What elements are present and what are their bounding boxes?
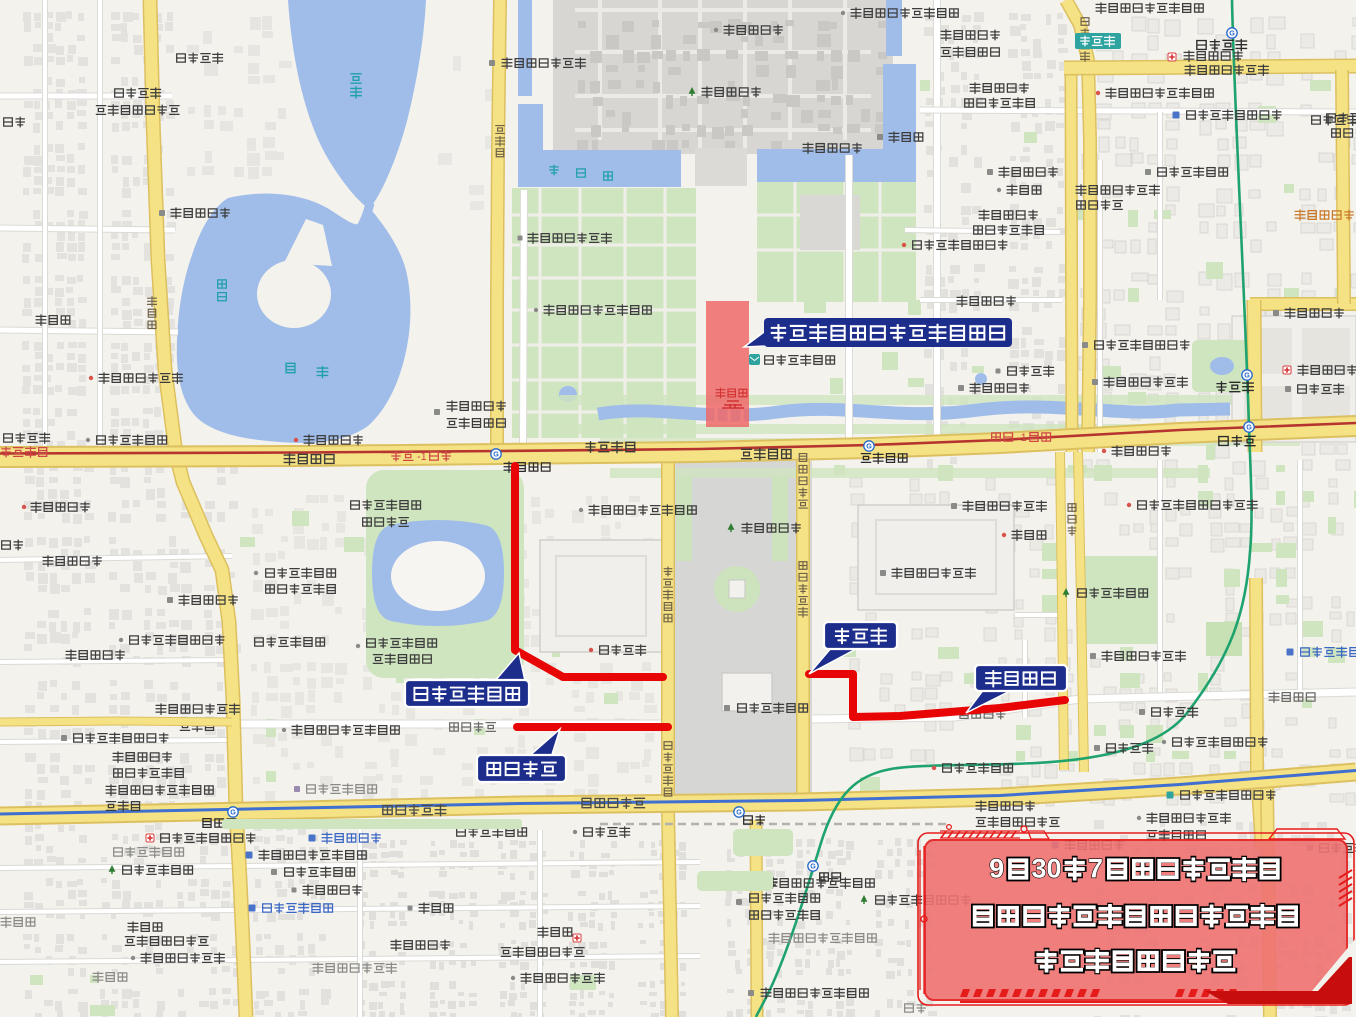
svg-text:-1: -1	[1017, 432, 1027, 444]
svg-text:G: G	[1244, 371, 1250, 380]
svg-text:G: G	[230, 808, 236, 817]
svg-text:G: G	[736, 808, 742, 817]
svg-text:G: G	[866, 442, 872, 451]
svg-text:G: G	[1229, 29, 1235, 38]
svg-text:30: 30	[1032, 854, 1062, 884]
svg-text:7: 7	[1088, 854, 1103, 884]
svg-text:9: 9	[989, 854, 1004, 884]
svg-text:G: G	[1246, 423, 1252, 432]
svg-text:-1: -1	[417, 451, 427, 463]
svg-text:G: G	[493, 450, 499, 459]
svg-text:G: G	[810, 862, 816, 871]
